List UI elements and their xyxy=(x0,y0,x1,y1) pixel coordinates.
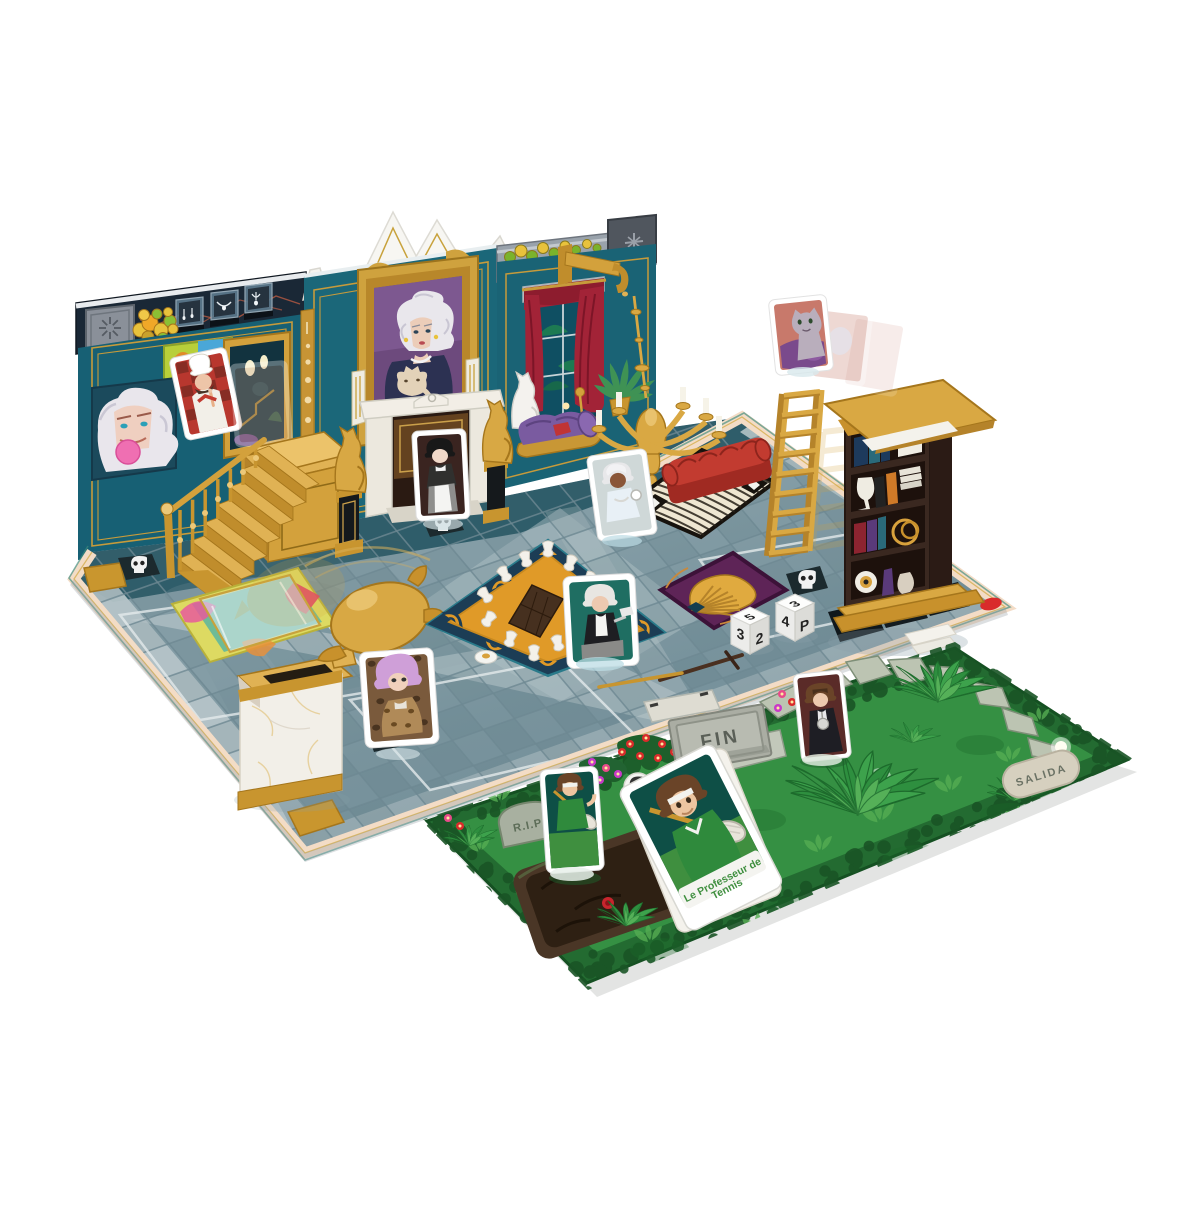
svg-text:3: 3 xyxy=(737,626,745,645)
svg-text:4: 4 xyxy=(782,613,790,632)
svg-text:2: 2 xyxy=(756,630,764,649)
